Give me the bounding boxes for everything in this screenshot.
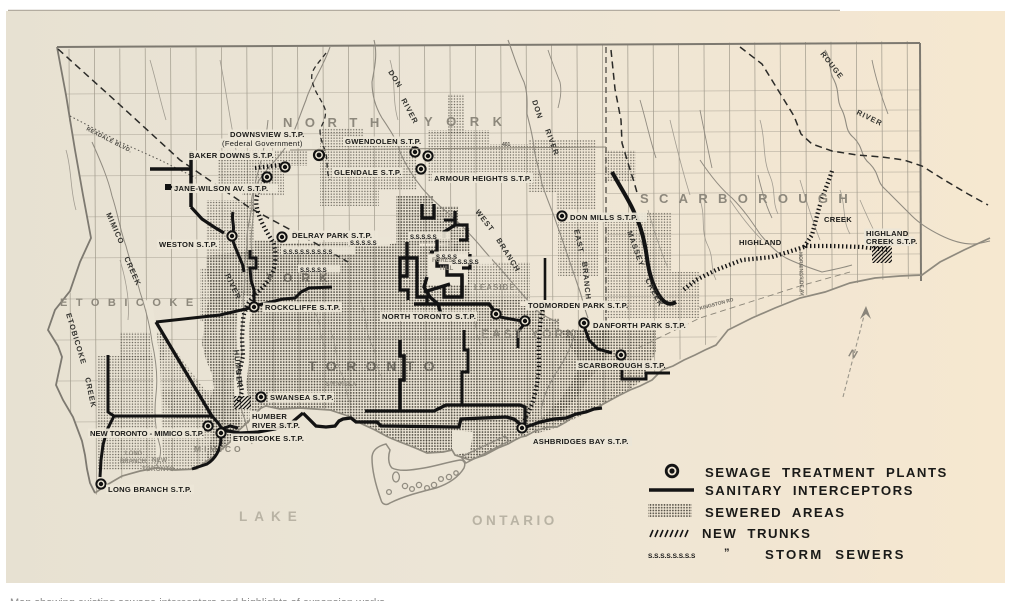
svg-text:EAST YORK: EAST YORK xyxy=(481,327,578,341)
svg-text:NORTH TORONTO S.T.P.: NORTH TORONTO S.T.P. xyxy=(382,312,476,321)
svg-text:ARMOUR HEIGHTS S.T.P.: ARMOUR HEIGHTS S.T.P. xyxy=(434,174,532,183)
svg-text:NEW TRUNKS: NEW TRUNKS xyxy=(702,526,811,541)
svg-text:YORK: YORK xyxy=(266,271,337,285)
svg-text:DELRAY PARK S.T.P.: DELRAY PARK S.T.P. xyxy=(292,231,372,240)
svg-text:DOWNSVIEW S.T.P.: DOWNSVIEW S.T.P. xyxy=(230,130,305,139)
svg-text:GWENDOLEN S.T.P.: GWENDOLEN S.T.P. xyxy=(345,137,421,146)
svg-text:S.S.S.S.S: S.S.S.S.S xyxy=(410,235,437,241)
svg-text:NEW TORONTO - MIMICO S.T.P.: NEW TORONTO - MIMICO S.T.P. xyxy=(90,429,204,438)
svg-text:Map showing existing sewage in: Map showing existing sewage interceptors… xyxy=(10,597,385,601)
svg-text:NORTH: NORTH xyxy=(283,115,392,130)
svg-text:TODMORDEN PARK S.T.P.: TODMORDEN PARK S.T.P. xyxy=(528,301,628,310)
svg-text:SCARBOROUGH S.T.P.: SCARBOROUGH S.T.P. xyxy=(578,361,666,370)
svg-text:SCARBOROUGH: SCARBOROUGH xyxy=(640,191,858,206)
svg-text:LEASIDE: LEASIDE xyxy=(474,283,516,292)
svg-text:S.S.S.S.S: S.S.S.S.S xyxy=(350,241,377,247)
svg-text:WESTON S.T.P.: WESTON S.T.P. xyxy=(159,240,217,249)
svg-text:ONTARIO: ONTARIO xyxy=(472,513,558,528)
svg-text:ASHBRIDGES BAY S.T.P.: ASHBRIDGES BAY S.T.P. xyxy=(533,437,629,446)
svg-text:FOREST: FOREST xyxy=(432,258,457,264)
svg-text:ETOBICOKE: ETOBICOKE xyxy=(60,297,202,309)
svg-text:S.S.S.S.S.S.S.S.S: S.S.S.S.S.S.S.S.S xyxy=(283,250,332,256)
svg-text:STORM SEWERS: STORM SEWERS xyxy=(765,547,906,562)
svg-text:CREEK S.T.P.: CREEK S.T.P. xyxy=(866,237,918,246)
svg-text:TORONTO: TORONTO xyxy=(142,466,174,473)
svg-text:SWANSEA S.T.P.: SWANSEA S.T.P. xyxy=(270,393,334,402)
svg-text:LAKE: LAKE xyxy=(239,509,304,524)
svg-text:HUMBER: HUMBER xyxy=(252,412,287,421)
svg-text:DON MILLS S.T.P.: DON MILLS S.T.P. xyxy=(570,213,638,222)
svg-text:NEW: NEW xyxy=(152,457,168,464)
svg-text:SWANSEA: SWANSEA xyxy=(326,382,357,388)
svg-text:SANITARY INTERCEPTORS: SANITARY INTERCEPTORS xyxy=(705,483,914,498)
svg-text:401: 401 xyxy=(502,142,511,148)
svg-text:DANFORTH PARK S.T.P.: DANFORTH PARK S.T.P. xyxy=(593,321,686,330)
svg-text:LONG BRANCH S.T.P.: LONG BRANCH S.T.P. xyxy=(108,485,192,494)
svg-text:TORONTO: TORONTO xyxy=(308,358,444,374)
svg-text:JANE-WILSON AV. S.T.P.: JANE-WILSON AV. S.T.P. xyxy=(174,184,268,193)
svg-text:HILL: HILL xyxy=(440,266,454,272)
svg-text:S.S.S.S.S.S.S.S: S.S.S.S.S.S.S.S xyxy=(648,553,696,560)
svg-text:BAKER DOWNS S.T.P.: BAKER DOWNS S.T.P. xyxy=(189,151,274,160)
svg-text:RIVER S.T.P.: RIVER S.T.P. xyxy=(252,421,300,430)
svg-text:(Federal Government): (Federal Government) xyxy=(222,139,303,148)
svg-text:BRANCH: BRANCH xyxy=(120,459,146,465)
svg-text:MIMICO: MIMICO xyxy=(194,444,244,454)
svg-text:YORK: YORK xyxy=(424,114,516,129)
svg-text:”: ” xyxy=(724,547,730,559)
svg-text:HIGHLAND: HIGHLAND xyxy=(739,238,782,247)
svg-text:SEWAGE TREATMENT PLANTS: SEWAGE TREATMENT PLANTS xyxy=(705,465,948,480)
svg-text:LONG: LONG xyxy=(125,451,143,457)
svg-text:ROCKCLIFFE S.T.P.: ROCKCLIFFE S.T.P. xyxy=(265,303,340,312)
svg-text:GLENDALE S.T.P.: GLENDALE S.T.P. xyxy=(334,168,402,177)
svg-text:CREEK: CREEK xyxy=(824,215,852,224)
svg-text:SEWERED AREAS: SEWERED AREAS xyxy=(705,505,846,520)
svg-text:ETOBICOKE S.T.P.: ETOBICOKE S.T.P. xyxy=(233,434,304,443)
